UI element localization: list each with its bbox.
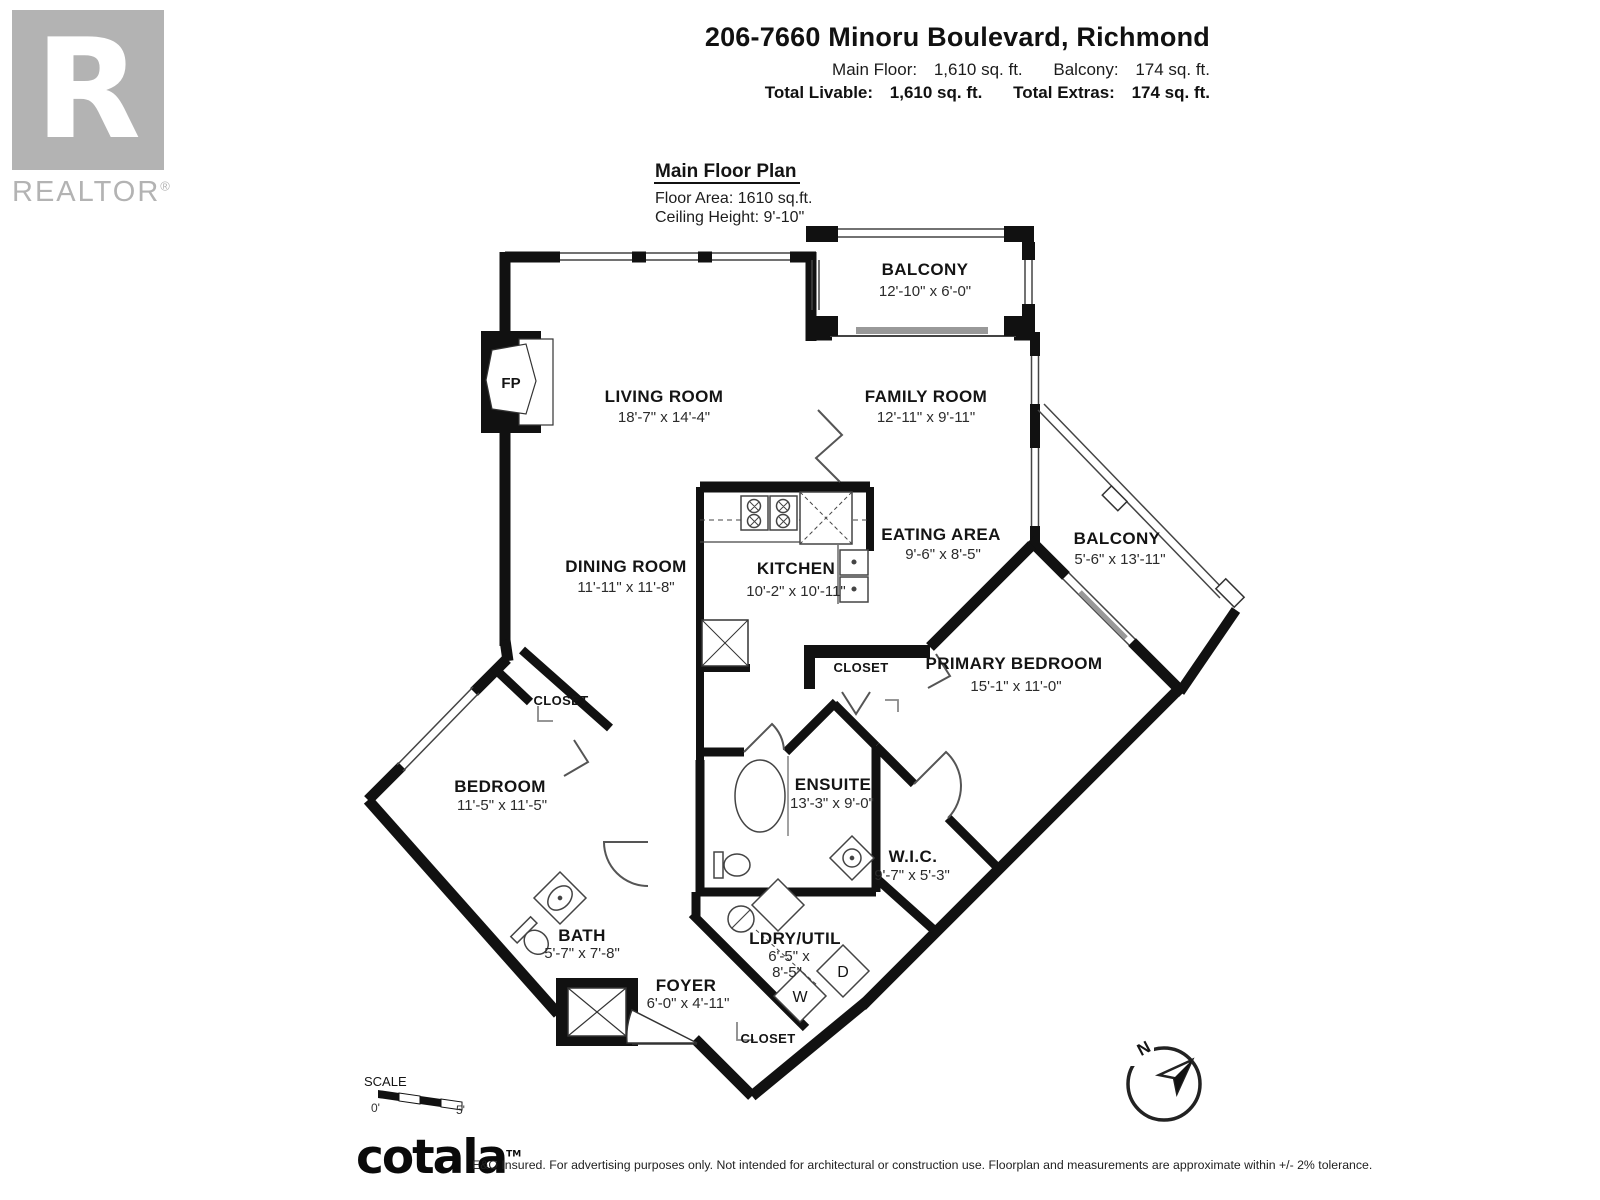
wall (522, 650, 610, 728)
room-label-balcony-top: BALCONY (882, 260, 969, 279)
wall (1030, 540, 1066, 576)
bedroom-door (564, 740, 588, 776)
room-label-ensuite: ENSUITE (795, 775, 871, 794)
primary-bedroom-window (1063, 573, 1135, 645)
washer-label: W (792, 989, 808, 1006)
sliding-door (856, 327, 988, 334)
wall (834, 704, 876, 746)
wall (786, 702, 836, 752)
railing-post (1102, 486, 1127, 511)
wall (862, 686, 1182, 1006)
wall (876, 878, 934, 930)
ensuite-door (744, 724, 784, 752)
wall (948, 818, 1000, 870)
wall (1180, 610, 1236, 692)
closet-label-entry: CLOSET (740, 1031, 795, 1046)
window (646, 249, 698, 264)
room-dims-family-room: 12'-11" x 9'-11" (877, 409, 975, 426)
entry-door (627, 1010, 697, 1043)
room-dims-eating-area: 9'-6" x 8'-5" (905, 546, 981, 563)
room-dims-foyer: 6'-0" x 4'-11" (647, 995, 730, 1012)
plan-title: Main Floor Plan (655, 161, 796, 182)
wall (695, 1039, 752, 1096)
window (560, 249, 632, 264)
room-label-foyer: FOYER (656, 976, 717, 995)
room-label-bath: BATH (558, 926, 606, 945)
room-dims-wic: 9'-7" x 5'-3" (874, 867, 950, 884)
room-label-balcony-right: BALCONY (1074, 529, 1161, 548)
room-label-kitchen: KITCHEN (757, 559, 835, 578)
ensuite-sink (830, 836, 874, 880)
closet-label-bedroom: CLOSET (533, 693, 588, 708)
kitchen-pantry-box (702, 620, 748, 666)
room-dims-primary-bedroom: 15'-1" x 11'-0" (970, 678, 1061, 695)
wall (368, 766, 402, 800)
room-label-bedroom: BEDROOM (454, 777, 546, 796)
railing-post (1216, 579, 1244, 607)
dryer-label: D (837, 964, 849, 981)
room-label-dining-room: DINING ROOM (565, 557, 687, 576)
room-dims-bedroom: 11'-5" x 11'-5" (457, 797, 547, 814)
bedroom-window (397, 687, 479, 771)
room-label-living-room: LIVING ROOM (605, 387, 724, 406)
floorplan-page: R REALTOR® 206-7660 Minoru Boulevard, Ri… (0, 0, 1600, 1200)
sliding-door (1080, 592, 1126, 638)
plan-floor-area: Floor Area: 1610 sq.ft. (655, 190, 812, 207)
bath-door (604, 842, 648, 886)
wic-door (914, 752, 961, 818)
wall (505, 640, 508, 661)
wall (494, 668, 530, 702)
room-label-wic: W.I.C. (889, 847, 938, 866)
north-compass: N (1124, 1037, 1200, 1120)
fireplace: FP (481, 331, 553, 433)
room-dims-balcony-top: 12'-10" x 6'-0" (879, 283, 971, 300)
ensuite-toilet (714, 852, 750, 878)
laundry-tub (752, 879, 804, 931)
balcony-top-structure (806, 226, 1035, 336)
floor-plan-svg: Main Floor Plan Floor Area: 1610 sq.ft. … (0, 0, 1600, 1200)
wall (876, 746, 914, 784)
room-dims-dining-room: 11'-11" x 11'-8" (577, 579, 674, 596)
scale-bar: SCALE 0' 5' (364, 1074, 465, 1117)
balcony-right-railing (1038, 404, 1244, 607)
foyer-storage-box (556, 978, 638, 1046)
closet-label-primary: CLOSET (833, 660, 888, 675)
scale-label: SCALE (364, 1074, 407, 1089)
window (712, 249, 790, 264)
room-dims-kitchen: 10'-2" x 10'-11" (746, 583, 846, 600)
wall (752, 1002, 866, 1096)
room-dims-living-room: 18'-7" x 14'-4" (618, 409, 710, 426)
bathtub (735, 760, 785, 832)
family-balcony-door (830, 327, 1016, 336)
room-label-primary-bedroom: PRIMARY BEDROOM (926, 654, 1103, 673)
room-label-ldry-util: LDRY/UTIL (749, 929, 841, 948)
room-dims-bath: 5'-7" x 7'-8" (544, 945, 620, 962)
room-dims2-ldry-util: 8'-5" (772, 964, 802, 981)
wall (368, 800, 558, 1014)
disclaimer-text: E&O Insured. For advertising purposes on… (472, 1158, 1372, 1172)
room-dims-balcony-right: 5'-6" x 13'-11" (1074, 551, 1165, 568)
room-label-eating-area: EATING AREA (881, 525, 1001, 544)
room-dims-ldry-util: 6'-5" x (768, 948, 810, 965)
living-room-windows (560, 249, 790, 264)
fireplace-label: FP (501, 375, 520, 392)
plan-header: Main Floor Plan Floor Area: 1610 sq.ft. … (654, 161, 812, 226)
scale-end: 5' (456, 1103, 465, 1117)
room-dims-ensuite: 13'-3" x 9'-0" (790, 795, 874, 812)
folding-door (816, 410, 842, 482)
plan-ceiling-height: Ceiling Height: 9'-10" (655, 209, 804, 226)
room-label-family-room: FAMILY ROOM (865, 387, 987, 406)
scale-start: 0' (371, 1101, 380, 1115)
